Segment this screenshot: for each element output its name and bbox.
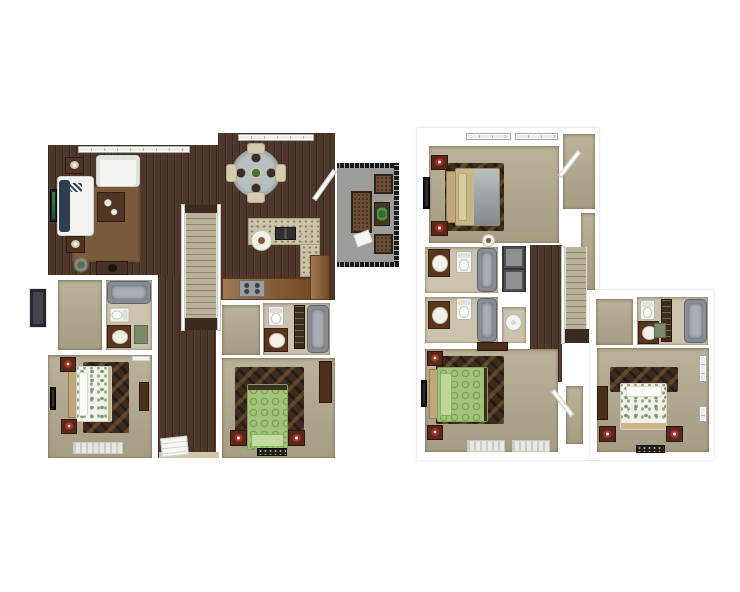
bed2u bbox=[437, 367, 488, 422]
bathA-vanity bbox=[428, 249, 450, 277]
master-window-left bbox=[466, 133, 511, 140]
stairs-2 bbox=[565, 247, 587, 329]
bed3-dresser bbox=[597, 386, 608, 420]
master-tv bbox=[423, 177, 430, 209]
bathA-toilet bbox=[456, 251, 472, 273]
master-closet bbox=[563, 134, 595, 209]
linen-cabinet-upper bbox=[504, 247, 524, 268]
bed2u-mat-right bbox=[512, 440, 550, 452]
bed2u-tv bbox=[421, 380, 427, 407]
floorplan-stage bbox=[0, 0, 740, 592]
stairs-2-landing bbox=[563, 329, 589, 343]
bed2u-nightstand-bottom bbox=[427, 425, 443, 440]
bed3-window-upper bbox=[699, 355, 707, 382]
bed3-doormat bbox=[636, 445, 665, 453]
bathB-vanity bbox=[428, 301, 450, 329]
bed3-nightstand-right bbox=[666, 426, 683, 442]
bed3 bbox=[620, 383, 667, 430]
bathB-tub bbox=[477, 298, 497, 342]
bed2u-mat-left bbox=[467, 440, 505, 452]
bathC-mat bbox=[654, 323, 666, 338]
bathB-toilet bbox=[456, 298, 472, 320]
stairs-2-rail bbox=[561, 246, 565, 344]
wc-toilet bbox=[505, 314, 522, 331]
master-nightstand-top bbox=[431, 155, 448, 170]
bathA-tub bbox=[477, 248, 497, 292]
bathC-toilet bbox=[640, 300, 655, 320]
bed2u-vanity-dresser bbox=[477, 342, 508, 351]
linen-cabinet-lower bbox=[504, 270, 524, 291]
master-nightstand-bottom bbox=[431, 221, 448, 236]
bed3-window-lower bbox=[699, 406, 707, 422]
bed3-nightstand-left bbox=[599, 426, 616, 442]
master-decor-table bbox=[482, 234, 495, 247]
bathC-tub bbox=[684, 299, 707, 343]
master-bed bbox=[455, 168, 500, 226]
closet-3 bbox=[596, 299, 633, 345]
second-floor-plan bbox=[0, 0, 740, 592]
master-window-right bbox=[515, 133, 558, 140]
bed2u-nightstand-top bbox=[427, 351, 443, 366]
